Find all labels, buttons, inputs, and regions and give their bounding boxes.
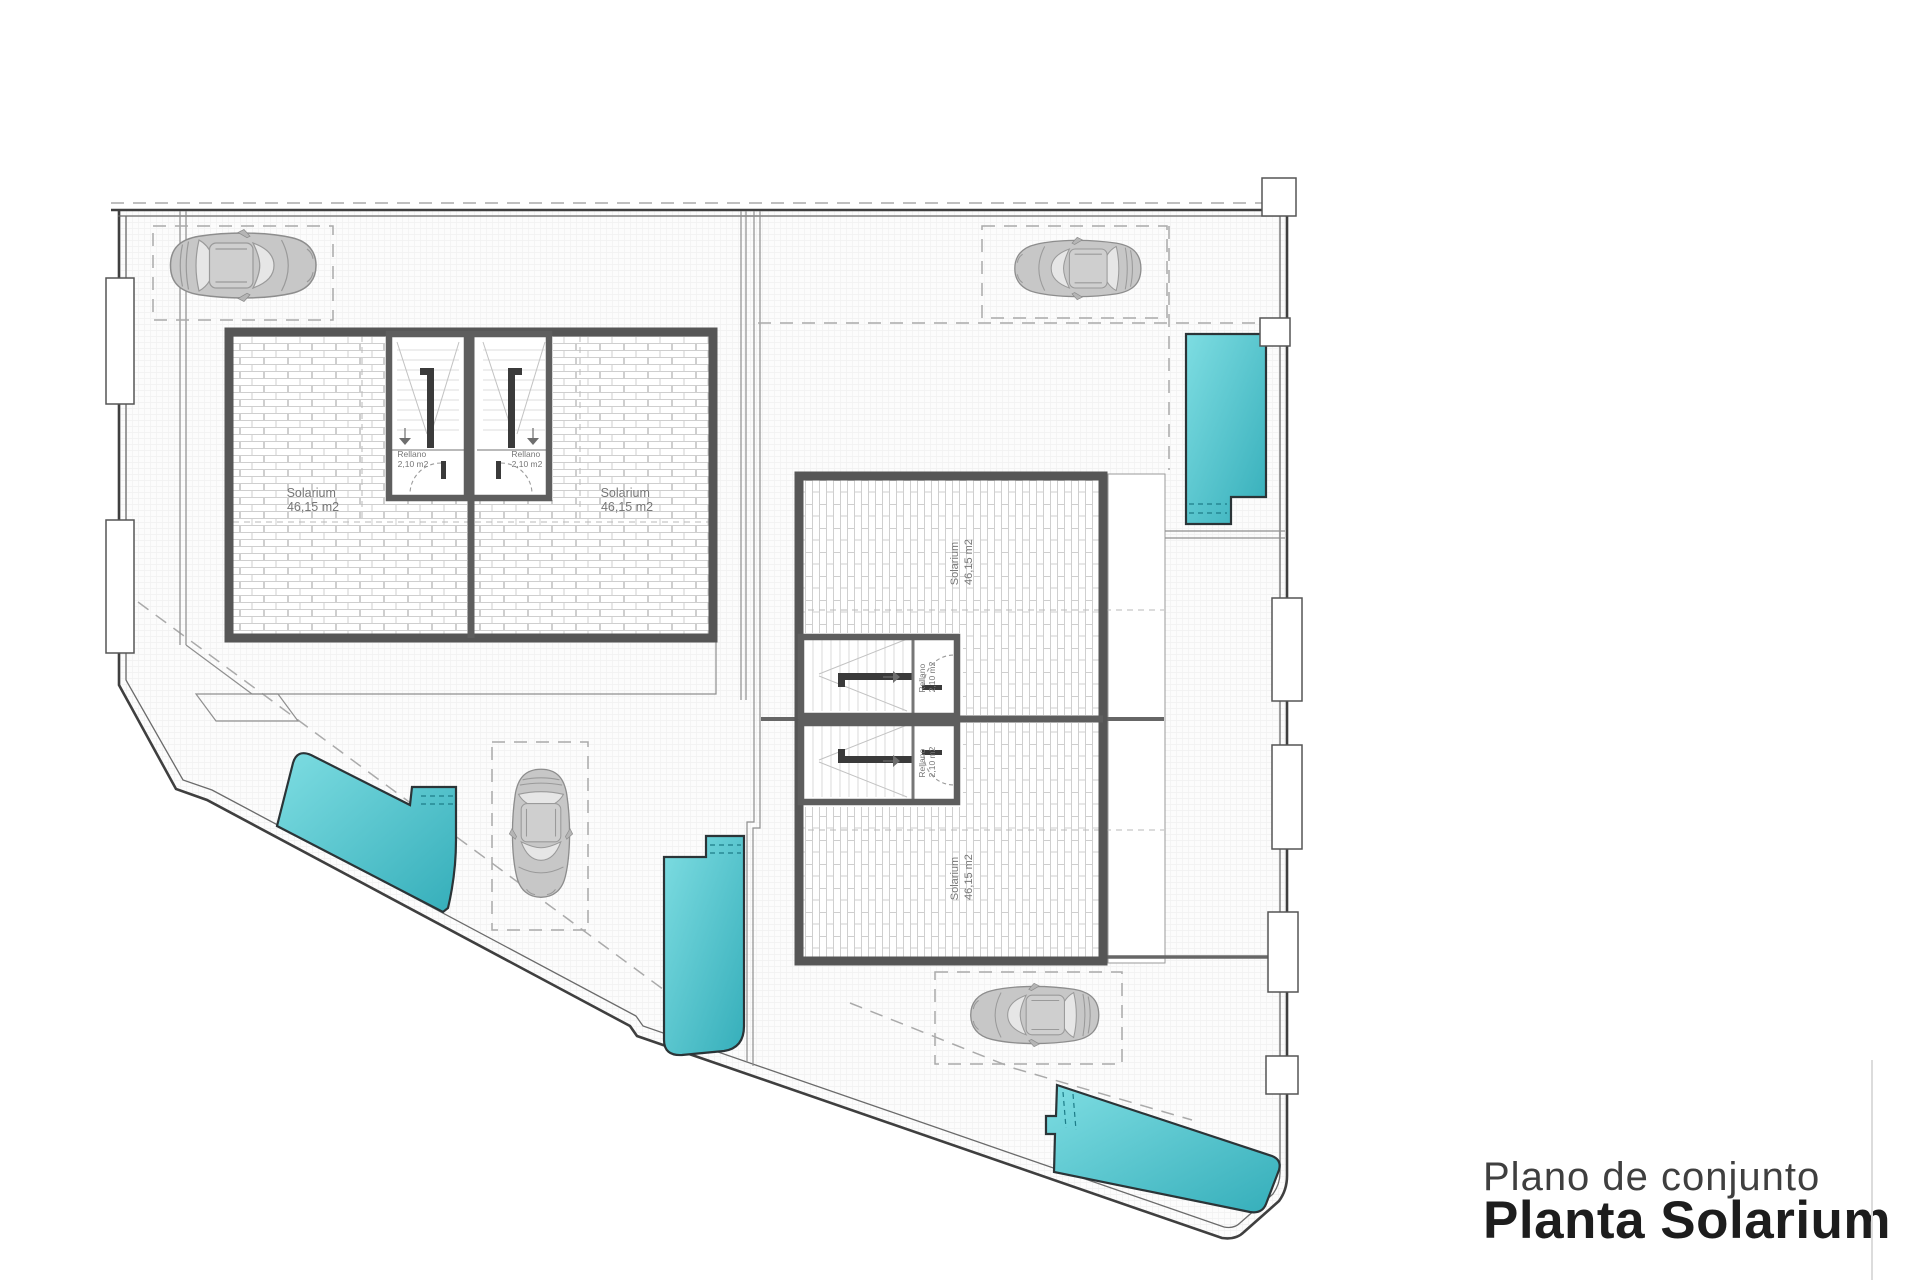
- window-marker: [1272, 598, 1302, 701]
- pillar-marker: [1262, 178, 1296, 216]
- stair-rail-icon: [838, 673, 913, 680]
- door-leaf-icon: [441, 461, 446, 479]
- floor-plan-canvas: Solarium 46,15 m2 Solarium 46,15 m2 Rell…: [0, 0, 1920, 1280]
- pillar-marker: [1260, 318, 1290, 346]
- door-leaf-icon: [496, 461, 501, 479]
- plan-sheet: Solarium 46,15 m2 Solarium 46,15 m2 Rell…: [0, 0, 1920, 1280]
- plan-title: Planta Solarium: [1483, 1191, 1891, 1250]
- pillar-marker: [1266, 1056, 1298, 1094]
- title-block: Plano de conjunto Planta Solarium: [1483, 1155, 1891, 1250]
- car-top-view-icon: [509, 769, 572, 897]
- solarium-label: Solarium 46,15 m2: [601, 486, 654, 514]
- swimming-pool-shape: [1186, 334, 1266, 524]
- car-top-view-icon: [1015, 237, 1141, 299]
- stair-rail-icon: [838, 756, 913, 763]
- left-building: Solarium 46,15 m2 Solarium 46,15 m2 Rell…: [229, 332, 713, 638]
- stair-rail-icon: [427, 368, 434, 448]
- rellano-label: Rellano 2,10 m2: [917, 661, 937, 692]
- solarium-label: Solarium 46,15 m2: [287, 486, 340, 514]
- swimming-pool-shape: [664, 836, 744, 1055]
- window-marker: [106, 520, 134, 653]
- window-marker: [1268, 912, 1298, 992]
- window-marker: [106, 278, 134, 404]
- stair-rail-icon: [508, 368, 515, 448]
- car-top-view-icon: [171, 230, 317, 302]
- rellano-label: Rellano 2,10 m2: [397, 449, 428, 469]
- car-top-view-icon: [971, 983, 1099, 1046]
- window-marker: [1272, 745, 1302, 849]
- rellano-label: Rellano 2,10 m2: [511, 449, 542, 469]
- rellano-label: Rellano 2,10 m2: [917, 746, 937, 777]
